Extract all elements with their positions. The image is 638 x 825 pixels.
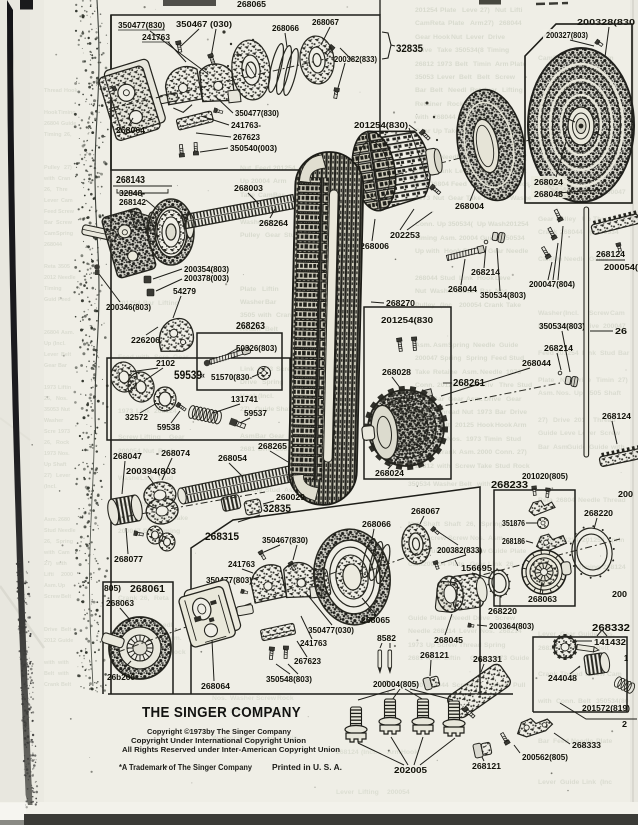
svg-text:*A Trademark of The Singer Com: *A Trademark of The Singer Company [119,763,253,772]
svg-text:268045: 268045 [434,636,463,645]
svg-text:Lifting: Lifting [358,789,379,796]
svg-text:Screw: Screw [600,430,621,437]
svg-text:Guid: Guid [44,297,56,303]
svg-text:Screw: Screw [589,310,610,317]
svg-text:Washer: Washer [240,299,265,306]
svg-text:Gear: Gear [265,232,281,239]
svg-text:Lever: Lever [466,34,484,41]
svg-text:268263: 268263 [236,321,265,332]
svg-text:Nut: Nut [462,409,474,416]
svg-text:Cran: Cran [58,176,70,182]
svg-text:with: with [425,248,440,255]
svg-text:Plate: Plate [448,20,464,27]
svg-text:Reta: Reta [154,595,169,602]
svg-text:Stud: Stud [495,463,510,470]
svg-text:Screw: Screw [58,209,75,215]
svg-text:Timin: Timin [596,377,614,384]
svg-text:805): 805) [104,584,121,593]
svg-text:268121: 268121 [420,651,449,660]
svg-text:Lever: Lever [44,352,59,358]
svg-text:Lifti: Lifti [44,572,54,578]
svg-text:Gear: Gear [415,34,431,41]
svg-text:268063: 268063 [106,599,134,608]
svg-text:200378(003): 200378(003) [184,274,229,283]
svg-text:Wash: Wash [488,221,506,228]
svg-text:with: with [43,176,55,182]
svg-text:268063: 268063 [528,595,557,604]
svg-text:Lifti: Lifti [510,7,523,14]
svg-text:Guide: Guide [499,342,518,349]
svg-text:with: with [57,660,69,666]
svg-text:Lever: Lever [538,779,556,786]
svg-text:3505: 3505 [240,312,255,319]
svg-text:Printed in U. S. A.: Printed in U. S. A. [272,763,342,772]
svg-text:Nut: Nut [61,407,70,413]
svg-text:Feed: Feed [44,209,57,215]
svg-text:268067: 268067 [411,507,440,516]
svg-text:Up: Up [574,390,583,397]
svg-text:201254: 201254 [415,7,438,14]
svg-text:268066: 268066 [362,520,391,529]
svg-text:Lever: Lever [56,473,71,479]
svg-text:Hook: Hook [433,34,450,41]
svg-text:Spring: Spring [56,231,73,237]
svg-text:Plate: Plate [430,615,446,622]
svg-text:Timing: Timing [487,47,509,54]
svg-text:Stud: Stud [44,528,56,534]
svg-text:with: with [257,312,272,319]
svg-text:Thre: Thre [56,187,68,193]
svg-text:Cam: Cam [44,231,56,237]
svg-text:351876: 351876 [502,519,525,528]
svg-text:26,: 26, [466,521,476,528]
svg-text:Guide: Guide [488,548,507,555]
svg-text:26,: 26, [44,396,52,402]
svg-text:Bar: Bar [58,363,68,369]
svg-text:2000: 2000 [61,572,73,578]
svg-text:27): 27) [44,561,52,567]
svg-text:with: with [43,550,55,556]
svg-text:Timing: Timing [44,286,62,292]
svg-text:Rock: Rock [56,440,69,446]
svg-text:Hook: Hook [401,749,418,756]
svg-text:Drive: Drive [44,627,58,633]
svg-text:268121: 268121 [472,762,501,771]
svg-text:268067: 268067 [312,18,339,27]
svg-text:1973: 1973 [44,385,56,391]
svg-text:Lever: Lever [459,628,477,635]
svg-text:268024: 268024 [534,178,563,187]
svg-text:(Incl.: (Incl. [44,484,57,490]
svg-text:Needle: Needle [58,275,76,281]
svg-text:27): 27) [517,449,527,456]
svg-text:26b260: 26b260 [107,673,135,682]
svg-text:350477(830): 350477(830) [235,109,279,118]
svg-text:268077: 268077 [114,555,143,564]
svg-text:51570(830-: 51570(830- [211,373,252,382]
svg-text:Guide: Guide [408,615,427,622]
svg-text:32835: 32835 [396,43,423,55]
svg-text:268214: 268214 [544,344,573,353]
svg-text:268044: 268044 [433,114,456,121]
svg-text:268124: 268124 [596,250,625,259]
svg-text:Needle: Needle [578,497,601,504]
svg-text:Bar: Bar [618,350,630,357]
svg-text:Plate: Plate [510,61,526,68]
svg-text:Reta: Reta [430,20,445,27]
svg-text:Lever: Lever [437,74,455,81]
svg-text:268061: 268061 [130,584,165,595]
svg-text:268054: 268054 [218,454,247,463]
svg-text:Thre: Thre [499,382,514,389]
svg-text:Needl: Needl [448,87,467,94]
svg-text:350534(803): 350534(803) [480,291,526,300]
svg-text:Plate: Plate [510,548,526,555]
svg-text:268233: 268233 [491,480,528,491]
svg-text:Copyright Under International: Copyright Under International Copyright … [131,736,306,745]
svg-text:350467(830): 350467(830) [262,536,308,545]
svg-text:50326(803): 50326(803) [236,344,277,353]
svg-text:54279: 54279 [173,287,196,296]
svg-text:Nut: Nut [143,448,155,455]
svg-text:268044: 268044 [415,275,438,282]
svg-text:Up: Up [553,256,562,263]
svg-text:Arm: Arm [273,178,287,185]
svg-text:Stud: Stud [506,436,521,443]
svg-text:Bar: Bar [495,409,507,416]
svg-text:Rock: Rock [447,101,464,108]
svg-text:Nos.: Nos. [56,396,68,402]
svg-text:59537: 59537 [244,409,267,418]
svg-text:27): 27) [64,165,72,171]
svg-text:with: with [436,463,451,470]
svg-text:Washe: Washe [510,195,532,202]
svg-text:268044: 268044 [499,20,522,27]
svg-text:Plate: Plate [538,377,554,384]
svg-text:Crank: Crank [484,302,503,309]
svg-text:268143: 268143 [116,175,145,186]
svg-text:Timin: Timin [484,436,502,443]
svg-text:200354(803): 200354(803) [184,265,229,274]
svg-text:2: 2 [622,719,627,729]
svg-text:Gear: Gear [538,216,554,223]
svg-text:Lever: Lever [44,198,59,204]
svg-text:Guide: Guide [538,430,557,437]
svg-text:Hook: Hook [64,88,77,94]
svg-text:2680: 2680 [58,517,70,523]
svg-text:268044: 268044 [448,285,477,294]
svg-text:Conn.: Conn. [556,698,575,705]
svg-text:Cam: Cam [58,550,70,556]
svg-text:35053: 35053 [415,74,434,81]
svg-text:27): 27) [44,473,52,479]
svg-text:Asm: Asm [240,433,255,440]
svg-text:26,: 26, [64,132,72,138]
svg-text:226206: 226206 [131,336,160,345]
svg-text:200004(805): 200004(805) [373,680,419,689]
svg-text:with: with [57,671,69,677]
svg-text:200382(833): 200382(833) [334,55,377,64]
svg-text:200562(805): 200562(805) [522,753,568,762]
svg-text:Nos.: Nos. [556,390,571,397]
svg-text:Drive: Drive [488,34,505,41]
svg-text:241763: 241763 [142,33,170,42]
svg-text:268264: 268264 [259,219,288,228]
svg-text:Up: Up [477,221,486,228]
svg-text:1973: 1973 [477,409,492,416]
svg-text:Belt: Belt [265,326,279,333]
svg-text:268028: 268028 [382,368,411,377]
svg-text:Up: Up [44,341,52,347]
svg-text:268065: 268065 [361,616,390,625]
svg-text:Asm: Asm [433,342,448,349]
svg-text:350534: 350534 [502,235,525,242]
svg-text:Belt: Belt [430,87,444,94]
svg-text:Stud: Stud [517,382,532,389]
svg-text:27): 27) [538,417,548,424]
svg-text:268003: 268003 [234,184,263,193]
svg-text:Cam: Cam [61,198,73,204]
svg-text:268006: 268006 [360,242,389,251]
svg-text:268220: 268220 [488,607,517,616]
svg-text:Feed: Feed [451,181,467,188]
svg-text:Leve: Leve [560,430,576,437]
svg-text:Washer: Washer [538,310,563,317]
svg-text:201572(819): 201572(819) [582,704,630,713]
svg-text:Scre: Scre [44,429,56,435]
svg-text:Needle: Needle [408,628,431,635]
svg-text:26,: 26, [44,440,52,446]
svg-text:268261: 268261 [453,378,485,389]
svg-text:Shaft: Shaft [53,462,67,468]
svg-text:268044: 268044 [560,229,583,236]
svg-text:2681: 2681 [240,446,255,453]
svg-text:Belt: Belt [61,682,71,688]
svg-text:26,: 26, [44,187,52,193]
svg-text:350467 (030): 350467 (030) [176,20,232,29]
svg-text:32572: 32572 [125,413,148,422]
svg-text:Drive: Drive [553,417,570,424]
svg-text:Needl: Needl [452,615,471,622]
svg-text:Leve: Leve [462,7,478,14]
svg-text:141432: 141432 [594,637,626,647]
svg-text:Take: Take [466,195,481,202]
svg-text:200: 200 [618,490,633,499]
svg-text:Nos.: Nos. [58,451,70,457]
svg-text:Belt: Belt [459,481,473,488]
svg-text:Washer: Washer [230,695,255,702]
svg-text:27): 27) [618,377,628,384]
svg-text:Belt: Belt [61,627,71,633]
svg-text:Cam: Cam [258,192,273,199]
svg-text:(Incl.: (Incl. [361,749,377,756]
svg-text:Needle: Needle [506,248,529,255]
svg-text:Screw: Screw [495,615,516,622]
svg-text:Feed: Feed [58,297,71,303]
svg-text:267623: 267623 [233,133,260,142]
svg-text:with: with [537,698,552,705]
svg-text:Lever: Lever [336,789,354,796]
svg-text:268044: 268044 [44,242,62,248]
svg-text:with: with [55,561,67,567]
svg-text:Timing: Timing [44,132,62,138]
svg-text:Guide: Guide [510,655,529,662]
svg-text:Spring: Spring [262,379,284,386]
svg-text:201254(830: 201254(830 [381,315,433,325]
svg-text:32848-: 32848- [119,189,145,198]
svg-text:201020(805): 201020(805) [522,472,568,481]
svg-text:8582: 8582 [377,634,396,643]
svg-text:Nos.: Nos. [470,535,485,542]
svg-text:(Incl.: (Incl. [258,393,274,400]
svg-text:Spring: Spring [484,642,506,649]
svg-text:131741: 131741 [231,395,258,404]
svg-text:268048: 268048 [534,190,563,199]
svg-text:26804: 26804 [44,121,59,127]
svg-text:1: 1 [624,653,628,663]
svg-text:Belt: Belt [455,61,469,68]
svg-text:Asm.: Asm. [538,390,555,397]
svg-text:20125: 20125 [455,422,474,429]
svg-text:2012: 2012 [44,638,56,644]
svg-text:1973: 1973 [466,436,481,443]
svg-text:Shaft: Shaft [423,521,441,528]
svg-text:Take: Take [477,463,492,470]
svg-text:Washer: Washer [44,418,64,424]
svg-text:268064: 268064 [201,682,230,691]
svg-text:Arm: Arm [495,61,509,68]
svg-text:350534: 350534 [408,481,431,488]
svg-text:Gear: Gear [269,433,285,440]
svg-text:268004: 268004 [455,202,484,211]
svg-text:Bar: Bar [255,433,267,440]
svg-text:Rock: Rock [513,463,530,470]
svg-text:Nut: Nut [415,288,427,295]
svg-text:Arm: Arm [513,422,527,429]
svg-text:350477(030): 350477(030) [308,626,354,635]
svg-text:THE SINGER COMPANY: THE SINGER COMPANY [142,704,301,721]
svg-text:Asm.: Asm. [440,235,457,242]
svg-text:Plate: Plate [240,286,256,293]
svg-text:(Incl.: (Incl. [563,310,579,317]
svg-text:Screw: Screw [256,695,277,702]
svg-text:268331: 268331 [473,655,502,664]
svg-text:Conn.: Conn. [495,449,514,456]
svg-text:Needle: Needle [473,342,496,349]
svg-text:Washer: Washer [433,481,458,488]
svg-text:268065: 268065 [237,0,266,9]
svg-text:268047: 268047 [113,452,142,461]
svg-text:200346(803): 200346(803) [106,303,151,312]
svg-text:Belt: Belt [61,594,71,600]
svg-text:350534(803): 350534(803) [539,322,585,331]
svg-text:Gear: Gear [448,195,464,202]
svg-text:201254(830): 201254(830) [354,120,408,130]
svg-text:Belt: Belt [44,671,54,677]
svg-text:Bar: Bar [265,299,277,306]
svg-text:350534(8: 350534(8 [455,47,484,54]
svg-text:Spring: Spring [56,539,73,545]
svg-text:- 268074: - 268074 [156,449,190,458]
svg-text:Guide: Guide [589,444,608,451]
svg-text:1973: 1973 [44,451,56,457]
svg-text:Up: Up [44,462,52,468]
svg-text:Hook: Hook [477,422,494,429]
svg-text:1973: 1973 [58,429,70,435]
svg-text:268333: 268333 [572,741,601,750]
svg-text:Feed: Feed [491,355,507,362]
svg-text:Belt: Belt [459,74,473,81]
svg-text:Belt: Belt [61,352,71,358]
svg-text:Stud: Stud [600,350,615,357]
svg-text:Nut: Nut [433,195,445,202]
svg-text:Up: Up [437,221,446,228]
svg-text:2102: 2102 [156,359,175,368]
svg-text:202253: 202253 [390,231,420,240]
svg-text:1973: 1973 [408,642,423,649]
svg-text:Drive: Drive [473,615,490,622]
svg-text:Link: Link [582,779,596,786]
svg-text:268270: 268270 [386,299,415,308]
svg-text:Bar: Bar [415,87,427,94]
svg-text:Up: Up [415,248,424,255]
svg-text:Liftin: Liftin [262,286,279,293]
svg-text:Reta: Reta [44,264,57,270]
svg-text:268064: 268064 [116,126,145,135]
svg-text:200: 200 [612,590,627,599]
svg-text:1973: 1973 [437,61,452,68]
svg-text:Lifting: Lifting [502,87,523,94]
svg-text:Asm.: Asm. [462,369,479,376]
svg-text:Shaft: Shaft [604,390,622,397]
svg-text:268220: 268220 [584,509,613,518]
svg-text:Up: Up [58,583,66,589]
svg-text:Take: Take [415,369,430,376]
svg-text:Screw: Screw [455,463,476,470]
svg-text:Nut: Nut [240,165,252,172]
svg-text:Asm.: Asm. [44,517,58,523]
svg-text:Arm: Arm [470,20,484,27]
svg-text:Asm: Asm [488,535,503,542]
svg-text:Stud: Stud [440,275,455,282]
svg-text:«: « [200,370,205,380]
svg-text:Gear: Gear [506,396,522,403]
svg-text:268142: 268142 [119,198,146,207]
svg-text:(Incl.: (Incl. [53,341,66,347]
svg-text:Liftin: Liftin [58,385,71,391]
svg-text:Needle: Needle [564,256,587,263]
svg-text:Thread: Thread [44,88,62,94]
svg-text:27): 27) [480,7,490,14]
svg-text:35053: 35053 [44,407,59,413]
svg-text:All Rights Reserved under Inte: All Rights Reserved under Inter-American… [122,745,340,754]
svg-text:26: 26 [615,326,627,336]
svg-text:26,: 26, [44,539,52,545]
svg-text:Hook: Hook [495,422,512,429]
svg-text:Bar: Bar [44,220,54,226]
svg-text:Nos.: Nos. [212,695,227,702]
svg-text:27): 27) [484,20,494,27]
svg-text:268265: 268265 [258,442,287,451]
svg-text:Pull: Pull [513,682,526,689]
svg-text:350548(803): 350548(803) [266,675,312,684]
svg-text:260029: 260029 [276,493,305,502]
svg-text:Lifting: Lifting [158,300,179,307]
svg-text:Stud: Stud [158,475,173,482]
svg-text:Link: Link [240,366,254,373]
svg-text:Gear: Gear [488,248,504,255]
svg-text:350540(003): 350540(003) [230,144,277,153]
